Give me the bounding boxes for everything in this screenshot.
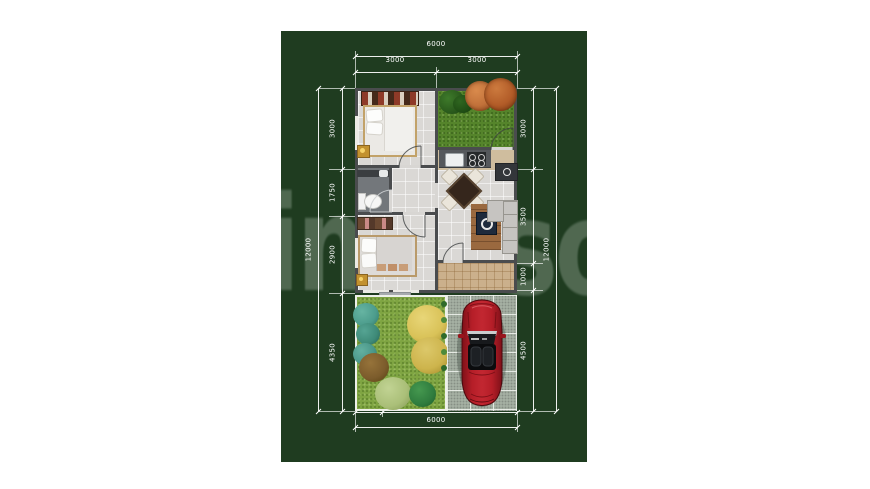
dim-top-seg-2: 3000 (457, 56, 497, 65)
extension-line (355, 411, 356, 432)
dim-bottom-total: 6000 (416, 416, 456, 425)
shrub-teal (356, 323, 380, 345)
dim-right-seg-4: 4500 (520, 331, 529, 371)
extension-line (517, 169, 543, 170)
extension-line (318, 411, 355, 412)
dim-right-seg-3: 1000 (520, 257, 529, 297)
dim-left-seg-3: 2900 (329, 235, 338, 275)
dim-left-seg-1: 3000 (329, 109, 338, 149)
extension-line (517, 411, 518, 432)
dim-right-seg-1: 3000 (520, 109, 529, 149)
dimension-line (533, 88, 534, 411)
extension-line (318, 88, 355, 89)
dim-left-seg-4: 4350 (329, 333, 338, 373)
shrub-dark (409, 381, 436, 407)
extension-line (517, 411, 556, 412)
front-garden (355, 295, 447, 411)
extension-line (517, 88, 556, 89)
dimension-line (355, 427, 517, 428)
dim-right-total: 12000 (543, 230, 552, 270)
dimension-tick (553, 409, 559, 415)
dimension-line (355, 412, 517, 413)
dimension-line (556, 88, 557, 411)
house-plan (355, 88, 517, 293)
dimension-line (342, 88, 343, 411)
door-arcs-layer (355, 88, 517, 293)
page-background: im so 6000 3000 3000 12000 3000 1750 290… (0, 0, 870, 489)
dim-right-seg-2: 3500 (520, 197, 529, 237)
dim-left-total: 12000 (305, 230, 314, 270)
dim-left-seg-2: 1750 (329, 173, 338, 213)
dimension-line (318, 88, 319, 411)
shrub-pale (375, 377, 411, 410)
car-red-roadster (456, 298, 508, 408)
dim-top-total: 6000 (416, 40, 456, 49)
dim-top-seg-1: 3000 (375, 56, 415, 65)
floorplan-image: im so 6000 3000 3000 12000 3000 1750 290… (281, 31, 587, 462)
carport (447, 295, 517, 411)
